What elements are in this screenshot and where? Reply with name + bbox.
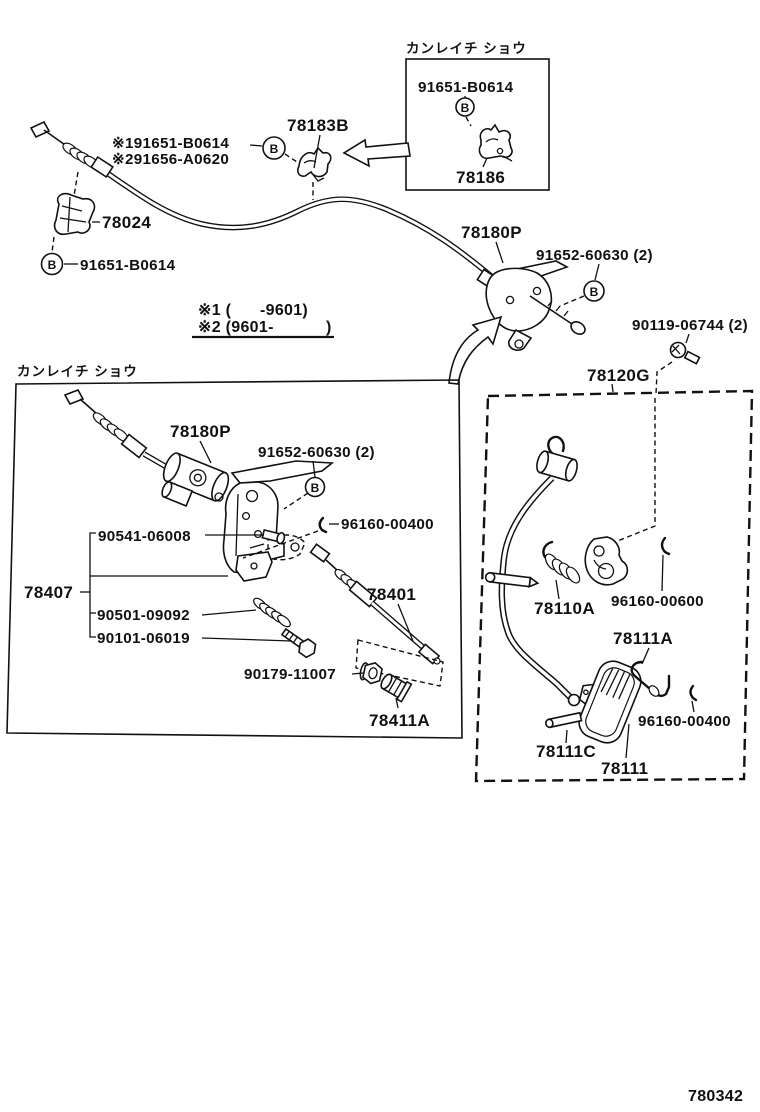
clamp-78024-drawing: [55, 194, 95, 235]
bolt-marker-letter: B: [48, 258, 57, 272]
note2-open: ※2 (9601-: [198, 319, 274, 336]
label-78111c: 78111C: [536, 742, 596, 761]
spring-90501-drawing: [252, 596, 293, 629]
bracket-78186-drawing: [479, 125, 512, 161]
bolt-90119-drawing: [671, 334, 700, 364]
bolt-marker-78183b: B: [250, 137, 297, 162]
label-78024: 78024: [102, 213, 151, 232]
inset-top-right: カンレイチ ショウ 91651-B0614 B 78186: [406, 41, 549, 190]
cold-cable-drawing: [65, 390, 232, 506]
label-96160-00600: 96160-00600: [611, 593, 704, 610]
svg-text:B: B: [461, 101, 470, 115]
pedal-assembly-box: 78110A 96160-00600 78111A 96160-00400 78…: [476, 391, 752, 781]
label-91651-b0614: 91651-B0614: [80, 257, 176, 274]
label-78111a: 78111A: [613, 629, 673, 648]
label-90119: 90119-06744 (2): [632, 317, 748, 334]
svg-text:B: B: [270, 142, 279, 156]
label-78407: 78407: [24, 583, 73, 602]
label-78111: 78111: [601, 759, 648, 778]
spring-78110a-drawing: [543, 542, 583, 585]
bush-78411a-drawing: [378, 671, 411, 702]
label-alt-bolt-1: ※191651-B0614: [112, 135, 229, 152]
label-78120g: 78120G: [587, 366, 650, 385]
label-96160-00400-left: 96160-00400: [341, 516, 434, 533]
label-78110a: 78110A: [534, 599, 595, 618]
clip-96160-00400-left-drawing: [320, 518, 326, 532]
label-78180p-main: 78180P: [461, 223, 522, 242]
bolt-marker-78024: B: [42, 254, 79, 275]
pin-78111c-drawing: [545, 713, 581, 728]
svg-text:B: B: [311, 481, 320, 495]
note2-close: ): [326, 319, 332, 336]
note1-open: ※1 (: [198, 302, 232, 319]
arrow-up-right-icon: [449, 317, 501, 384]
label-90101: 90101-06019: [97, 630, 190, 647]
bolt-marker-91652-main: B: [560, 264, 604, 306]
inset-top-right-title: カンレイチ ショウ: [406, 41, 527, 56]
label-78411a: 78411A: [369, 711, 430, 730]
pedal-bracket-drawing: [585, 537, 627, 585]
label-96160-00400-right: 96160-00400: [638, 713, 731, 730]
pedal-pivot-pin-drawing: [485, 572, 538, 587]
inset-cold-title: カンレイチ ショウ: [17, 364, 138, 379]
clip-96160-00600-drawing: [662, 538, 669, 554]
bracket-78407-drawing: [223, 461, 332, 581]
label-90541: 90541-06008: [98, 528, 191, 545]
clip-96160-00400-right-drawing: [691, 686, 697, 700]
inset-cold-spec: カンレイチ ショウ: [7, 364, 462, 738]
arrow-left-icon: [344, 140, 410, 166]
bolt-marker-78186: B: [456, 96, 474, 126]
label-90179: 90179-11007: [244, 666, 336, 683]
label-91652-main: 91652-60630 (2): [536, 247, 653, 264]
label-90501: 90501-09092: [97, 607, 190, 624]
label-78180p-cold: 78180P: [170, 422, 231, 441]
label-78186: 78186: [456, 168, 505, 187]
note-appliance-dates: ※1 ( -9601) ※2 (9601- ): [192, 302, 334, 337]
page-code: 780342: [688, 1088, 743, 1105]
label-78183b: 78183B: [287, 116, 349, 135]
bolt-90101-drawing: [279, 625, 318, 659]
cable-end-fitting: [31, 122, 49, 137]
parts-catalog-page: B B カンレイチ ショウ 91651-B0614 B 78186: [0, 0, 760, 1112]
label-91651-b0614-inset: 91651-B0614: [418, 79, 514, 96]
accelerator-link-diagram: B B カンレイチ ショウ 91651-B0614 B 78186: [0, 0, 760, 1112]
note1-close: -9601): [260, 302, 308, 319]
label-91652-cold: 91652-60630 (2): [258, 444, 375, 461]
svg-text:B: B: [590, 285, 599, 299]
label-alt-bolt-2: ※291656-A0620: [112, 151, 229, 168]
label-78401: 78401: [367, 585, 416, 604]
